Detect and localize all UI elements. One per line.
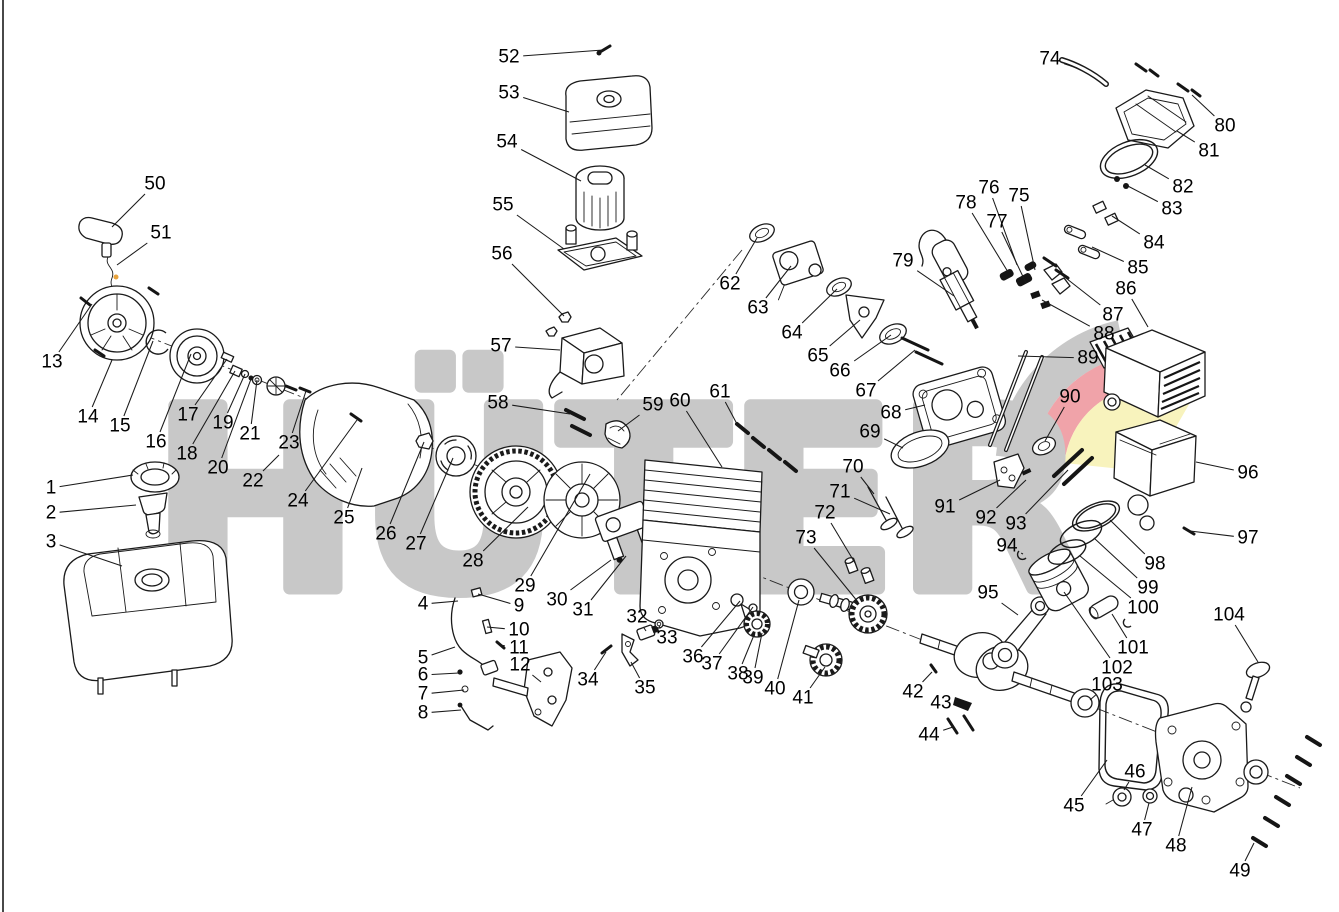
part-label-54: 54 bbox=[496, 132, 518, 153]
part-label-60: 60 bbox=[669, 391, 690, 412]
part-label-78: 78 bbox=[955, 193, 976, 214]
part-label-64: 64 bbox=[781, 323, 803, 344]
part-label-28: 28 bbox=[462, 551, 483, 572]
exploded-parts-diagram: HÜTER bbox=[0, 0, 1339, 912]
part-label-89: 89 bbox=[1077, 348, 1098, 369]
tank-cap bbox=[131, 462, 179, 492]
timing-gear-hub bbox=[820, 654, 832, 666]
part-label-93: 93 bbox=[1005, 514, 1026, 535]
part-label-39: 39 bbox=[742, 668, 763, 689]
tank-leg-1 bbox=[98, 678, 103, 694]
part-label-83: 83 bbox=[1161, 199, 1182, 220]
part-label-40: 40 bbox=[764, 679, 785, 700]
part-label-27: 27 bbox=[405, 534, 426, 555]
terminal-9 bbox=[471, 588, 482, 597]
part-label-68: 68 bbox=[880, 403, 901, 424]
part-label-49: 49 bbox=[1229, 861, 1250, 882]
part-label-59: 59 bbox=[642, 395, 663, 416]
part-label-96: 96 bbox=[1237, 463, 1258, 484]
part-label-3: 3 bbox=[46, 532, 57, 553]
part-label-58: 58 bbox=[487, 393, 508, 414]
part-label-46: 46 bbox=[1124, 762, 1145, 783]
part-label-101: 101 bbox=[1117, 638, 1149, 659]
starter-handle-stem bbox=[102, 243, 111, 257]
part-label-72: 72 bbox=[814, 503, 835, 524]
part-label-48: 48 bbox=[1165, 836, 1186, 857]
part-label-70: 70 bbox=[842, 457, 863, 478]
part-label-15: 15 bbox=[109, 416, 130, 437]
part-label-32: 32 bbox=[626, 607, 647, 628]
part-label-79: 79 bbox=[892, 251, 913, 272]
part-label-62: 62 bbox=[719, 274, 740, 295]
rod-big-end bbox=[992, 642, 1018, 668]
part-label-50: 50 bbox=[144, 174, 165, 195]
part-label-91: 91 bbox=[934, 497, 955, 518]
part-label-18: 18 bbox=[176, 444, 197, 465]
part-label-21: 21 bbox=[239, 424, 260, 445]
muffler-outlet bbox=[1104, 394, 1120, 410]
part-label-80: 80 bbox=[1214, 116, 1235, 137]
base-pipe-1-top bbox=[566, 225, 576, 231]
rope-end-marker bbox=[114, 275, 119, 280]
part-label-103: 103 bbox=[1091, 675, 1123, 696]
part-label-9: 9 bbox=[514, 596, 525, 617]
part-label-13: 13 bbox=[41, 352, 62, 373]
fuel-tank bbox=[64, 541, 232, 681]
part-label-56: 56 bbox=[491, 244, 512, 265]
part-label-87: 87 bbox=[1102, 305, 1123, 326]
nut-83a bbox=[1114, 176, 1120, 182]
part-label-37: 37 bbox=[701, 654, 722, 675]
cam-gear-hub bbox=[860, 606, 876, 622]
cover-port bbox=[597, 91, 621, 107]
cam-bearing bbox=[788, 579, 814, 605]
part-label-88: 88 bbox=[1093, 324, 1114, 345]
part-label-29: 29 bbox=[514, 576, 535, 597]
part-label-100: 100 bbox=[1127, 598, 1159, 619]
part-label-35: 35 bbox=[634, 678, 655, 699]
cover-bearing-boss bbox=[1183, 741, 1221, 779]
tank-leg-2 bbox=[172, 670, 177, 686]
part-label-24: 24 bbox=[287, 491, 309, 512]
part-label-86: 86 bbox=[1115, 279, 1136, 300]
diagram-canvas: HÜTER bbox=[0, 0, 1339, 912]
part-label-17: 17 bbox=[177, 405, 198, 426]
part-label-97: 97 bbox=[1237, 528, 1258, 549]
part-label-53: 53 bbox=[498, 83, 519, 104]
part-label-16: 16 bbox=[145, 432, 166, 453]
part-label-65: 65 bbox=[807, 346, 828, 367]
part-label-82: 82 bbox=[1172, 177, 1193, 198]
part-label-19: 19 bbox=[212, 413, 233, 434]
part-label-33: 33 bbox=[656, 628, 677, 649]
part-label-90: 90 bbox=[1059, 387, 1080, 408]
part-label-51: 51 bbox=[150, 223, 171, 244]
part-label-73: 73 bbox=[795, 528, 816, 549]
part-label-76: 76 bbox=[978, 178, 999, 199]
part-label-75: 75 bbox=[1008, 186, 1029, 207]
recoil-hub-center bbox=[113, 319, 121, 327]
part-label-23: 23 bbox=[278, 433, 299, 454]
filler-neck bbox=[135, 569, 169, 591]
part-label-22: 22 bbox=[242, 471, 263, 492]
part-label-77: 77 bbox=[986, 212, 1007, 233]
part-label-98: 98 bbox=[1144, 554, 1165, 575]
part-label-84: 84 bbox=[1143, 233, 1165, 254]
part-label-69: 69 bbox=[859, 422, 880, 443]
part-label-2: 2 bbox=[46, 503, 57, 524]
cover-screw-head bbox=[597, 51, 602, 56]
air-box-neck bbox=[1128, 495, 1148, 515]
part-label-36: 36 bbox=[682, 647, 703, 668]
part-label-71: 71 bbox=[829, 482, 850, 503]
part-label-63: 63 bbox=[747, 298, 768, 319]
part-label-4: 4 bbox=[418, 594, 429, 615]
part-label-42: 42 bbox=[902, 682, 923, 703]
starter-cup bbox=[436, 436, 476, 476]
part-label-20: 20 bbox=[207, 458, 228, 479]
part-label-67: 67 bbox=[855, 381, 876, 402]
part-label-25: 25 bbox=[333, 508, 354, 529]
part-label-44: 44 bbox=[918, 725, 940, 746]
part-label-92: 92 bbox=[975, 508, 996, 529]
governor-gear-hub bbox=[752, 619, 762, 629]
part-label-66: 66 bbox=[829, 361, 850, 382]
air-cleaner-cover bbox=[566, 76, 652, 151]
part-label-14: 14 bbox=[77, 407, 99, 428]
part-label-45: 45 bbox=[1063, 796, 1084, 817]
part-label-12: 12 bbox=[509, 655, 530, 676]
part-label-55: 55 bbox=[492, 195, 513, 216]
part-label-43: 43 bbox=[930, 693, 951, 714]
part-label-52: 52 bbox=[498, 47, 519, 68]
part-label-61: 61 bbox=[709, 382, 730, 403]
seal-ring bbox=[1143, 789, 1157, 803]
air-box-neck-2 bbox=[1140, 516, 1154, 530]
part-label-57: 57 bbox=[490, 336, 511, 357]
part-label-94: 94 bbox=[996, 536, 1018, 557]
part-label-85: 85 bbox=[1127, 258, 1148, 279]
filter-handle-slot bbox=[588, 172, 612, 184]
part-label-30: 30 bbox=[546, 590, 567, 611]
part-label-31: 31 bbox=[572, 600, 593, 621]
cover-bearing bbox=[1244, 760, 1268, 784]
rod-end bbox=[458, 703, 463, 708]
part-label-6: 6 bbox=[418, 665, 429, 686]
crank-bore bbox=[665, 557, 711, 603]
part-label-95: 95 bbox=[977, 583, 998, 604]
part-label-26: 26 bbox=[375, 524, 396, 545]
part-label-1: 1 bbox=[46, 478, 57, 499]
part-label-74: 74 bbox=[1039, 49, 1061, 70]
part-label-104: 104 bbox=[1213, 605, 1245, 626]
part-label-41: 41 bbox=[792, 688, 813, 709]
part-label-99: 99 bbox=[1137, 578, 1158, 599]
part-label-7: 7 bbox=[418, 684, 429, 705]
part-label-8: 8 bbox=[418, 703, 429, 724]
base-pipe-2-top bbox=[627, 231, 637, 237]
part-label-47: 47 bbox=[1131, 820, 1152, 841]
part-label-34: 34 bbox=[577, 670, 599, 691]
part-label-81: 81 bbox=[1198, 141, 1219, 162]
oil-filler-cap bbox=[1113, 788, 1131, 806]
bolt-6 bbox=[457, 669, 462, 674]
